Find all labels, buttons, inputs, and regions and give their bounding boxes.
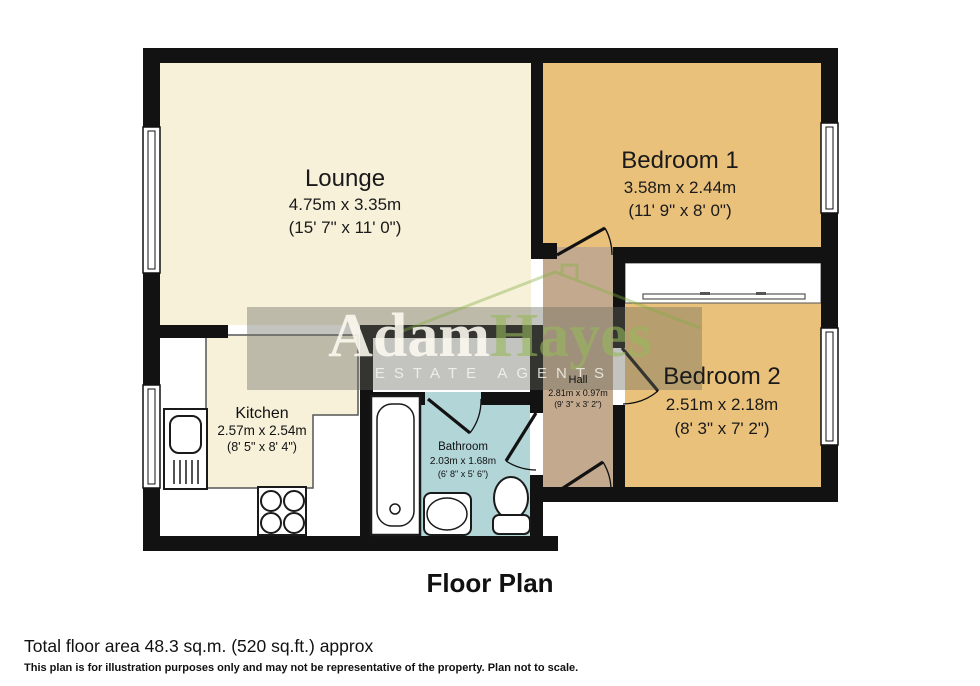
wardrobe-rail: [643, 294, 805, 299]
bedroom1-metric: 3.58m x 2.44m: [624, 178, 736, 197]
bath-drain: [390, 504, 400, 514]
lounge-name: Lounge: [305, 165, 385, 192]
wash-basin: [424, 493, 471, 535]
total-floor-area: Total floor area 48.3 sq.m. (520 sq.ft.)…: [24, 636, 373, 656]
bathroom-imperial: (6' 8" x 5' 6"): [438, 469, 488, 479]
kitchen-imperial: (8' 5" x 8' 4"): [227, 440, 297, 454]
floor-plan-page: AdamHayes ESTATE AGENTS Lounge 4.75m x 3…: [0, 0, 980, 686]
lounge-metric: 4.75m x 3.35m: [289, 195, 401, 214]
bedroom2-metric: 2.51m x 2.18m: [666, 395, 778, 414]
bathroom-name: Bathroom: [438, 441, 488, 453]
wardrobe-bracket: [756, 292, 766, 295]
disclaimer-text: This plan is for illustration purposes o…: [24, 662, 578, 674]
bedroom1-name: Bedroom 1: [621, 147, 738, 174]
hall-metric: 2.81m x 0.97m: [548, 388, 608, 398]
hall-name: Hall: [569, 374, 588, 386]
bedroom2-imperial: (8' 3" x 7' 2"): [674, 419, 769, 438]
toilet: [493, 477, 530, 534]
wardrobe: [625, 263, 821, 303]
bedroom2-name: Bedroom 2: [663, 363, 780, 390]
brand-logo: AdamHayes: [328, 302, 652, 370]
bathtub: [371, 396, 420, 535]
bedroom1-window: [821, 123, 838, 213]
lounge-floor: [160, 63, 531, 325]
kitchen-window: [143, 385, 160, 488]
lounge-imperial: (15' 7" x 11' 0"): [289, 218, 402, 237]
lounge-label: Lounge 4.75m x 3.35m (15' 7" x 11' 0"): [289, 165, 402, 237]
brand-word-hayes: Hayes: [490, 302, 652, 370]
lounge-window: [143, 127, 160, 273]
kitchen-name: Kitchen: [235, 405, 288, 422]
bedroom1-label: Bedroom 1 3.58m x 2.44m (11' 9" x 8' 0"): [621, 147, 738, 220]
hall-imperial: (9' 3" x 3' 2"): [554, 399, 602, 409]
bedroom2-window: [821, 328, 838, 445]
brand-word-adam: Adam: [328, 302, 490, 370]
sink-unit: [164, 409, 207, 489]
wardrobe-bracket: [700, 292, 710, 295]
bedroom1-imperial: (11' 9" x 8' 0"): [628, 201, 731, 220]
floor-plan-drawing: AdamHayes ESTATE AGENTS Lounge 4.75m x 3…: [0, 0, 980, 686]
plan-title: Floor Plan: [426, 568, 553, 598]
bathroom-metric: 2.03m x 1.68m: [430, 456, 496, 467]
kitchen-metric: 2.57m x 2.54m: [217, 423, 306, 438]
bedroom2-label: Bedroom 2 2.51m x 2.18m (8' 3" x 7' 2"): [663, 363, 780, 438]
bathroom-label: Bathroom 2.03m x 1.68m (6' 8" x 5' 6"): [430, 441, 496, 479]
hob: [258, 487, 306, 535]
